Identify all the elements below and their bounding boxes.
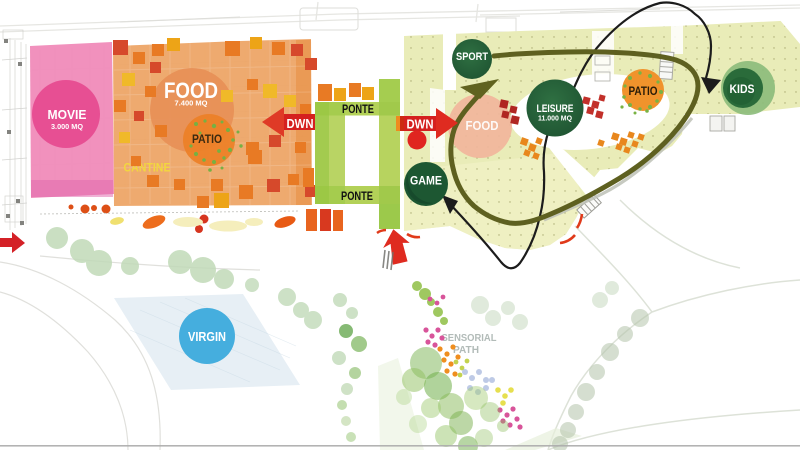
svg-text:PONTE: PONTE (341, 189, 373, 203)
svg-text:MOVIE: MOVIE (48, 108, 87, 122)
svg-text:3.000 MQ: 3.000 MQ (51, 124, 84, 131)
svg-text:PATH: PATH (453, 344, 479, 356)
svg-text:PONTE: PONTE (342, 102, 374, 116)
svg-text:KIDS: KIDS (730, 82, 755, 96)
svg-text:CANTINE: CANTINE (124, 161, 171, 175)
svg-text:11.000 MQ: 11.000 MQ (538, 116, 573, 123)
svg-text:DWN: DWN (287, 116, 314, 131)
svg-text:LEISURE: LEISURE (537, 103, 574, 115)
svg-text:PATIO: PATIO (629, 84, 658, 98)
svg-text:SPORT: SPORT (456, 51, 488, 63)
svg-text:DWN: DWN (407, 117, 434, 132)
svg-text:7.400 MQ: 7.400 MQ (175, 99, 208, 108)
svg-text:SENSORIAL: SENSORIAL (442, 332, 498, 344)
svg-text:VIRGIN: VIRGIN (188, 329, 226, 344)
svg-text:GAME: GAME (410, 174, 442, 188)
svg-text:PATIO: PATIO (192, 132, 222, 146)
svg-text:FOOD: FOOD (466, 119, 499, 133)
